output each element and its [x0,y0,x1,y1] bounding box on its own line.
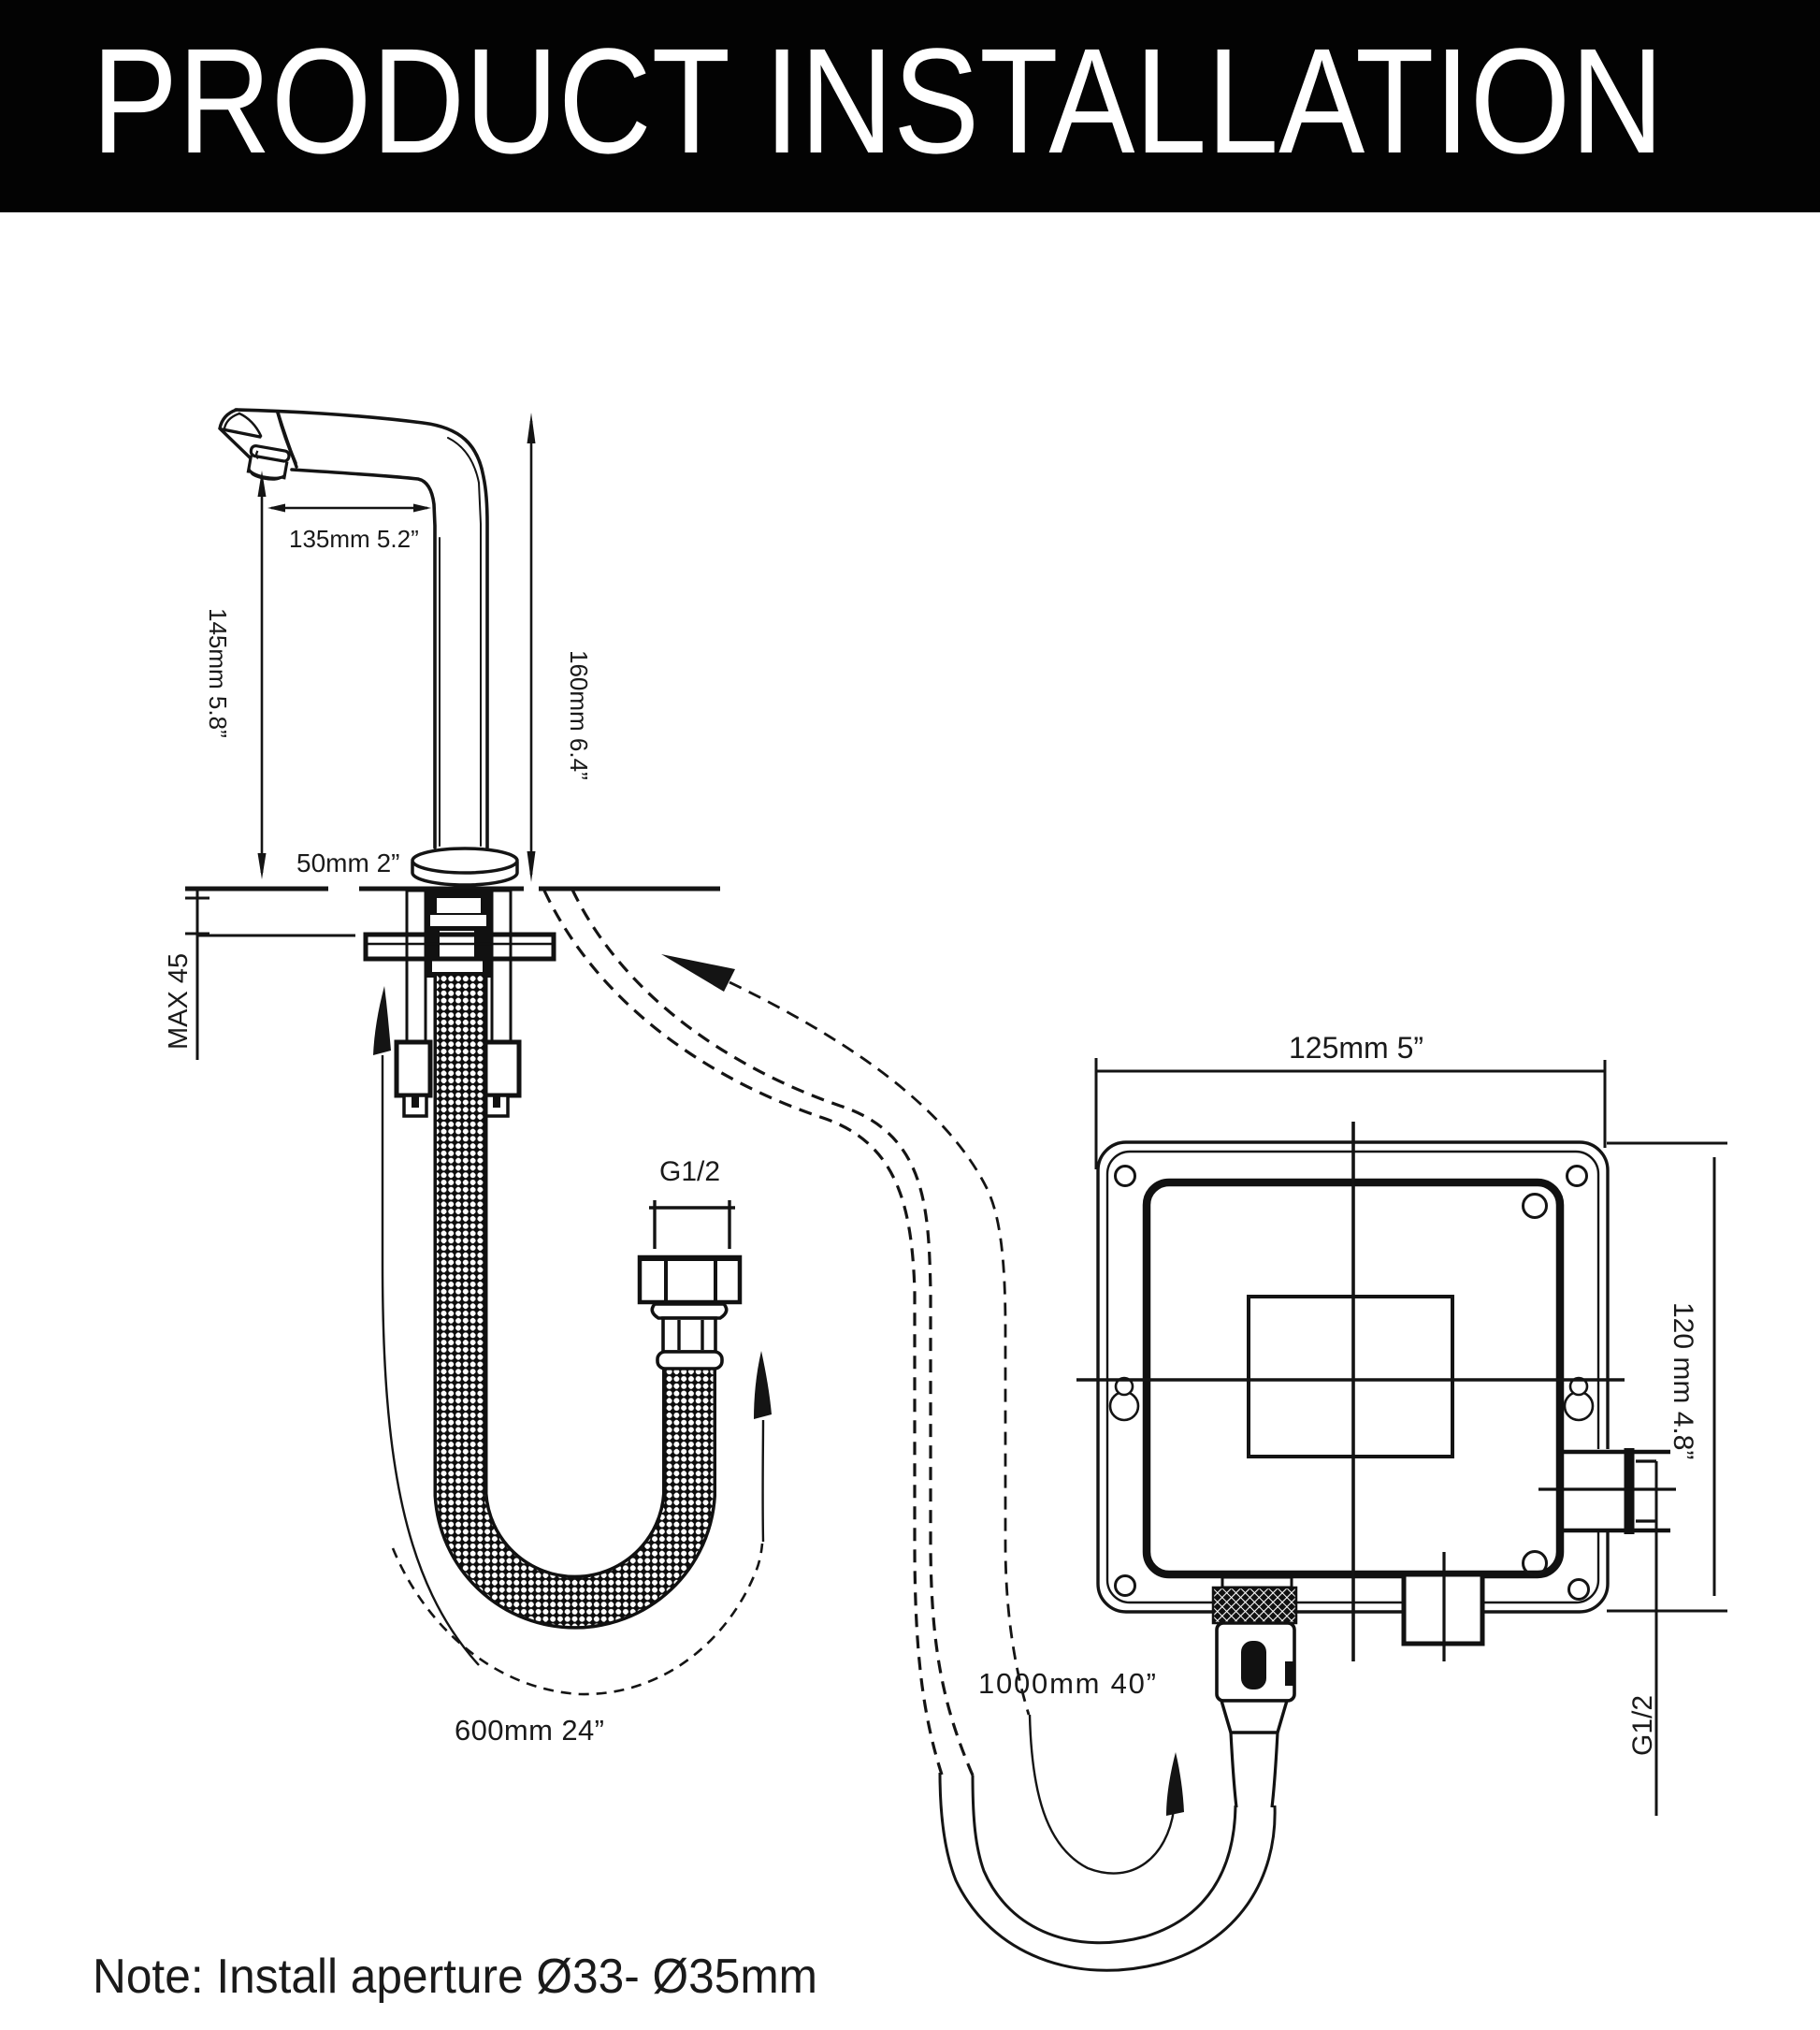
svg-text:1000mm 40”: 1000mm 40” [978,1667,1156,1700]
svg-text:160mm 6.4”: 160mm 6.4” [565,650,593,780]
svg-text:G1/2: G1/2 [659,1156,720,1187]
svg-text:PRODUCT INSTALLATION: PRODUCT INSTALLATION [92,17,1664,184]
svg-text:50mm 2”: 50mm 2” [296,848,399,877]
svg-text:125mm 5”: 125mm 5” [1289,1031,1423,1065]
svg-text:145mm 5.8”: 145mm 5.8” [204,608,232,738]
svg-text:600mm 24”: 600mm 24” [455,1714,604,1747]
svg-text:120 mm 4.8”: 120 mm 4.8” [1668,1302,1698,1459]
svg-text:135mm 5.2”: 135mm 5.2” [289,525,419,553]
svg-text:G1/2: G1/2 [1627,1695,1658,1756]
svg-text:MAX 45: MAX 45 [164,953,194,1050]
svg-text:Note: Install aperture Ø33- Ø3: Note: Install aperture Ø33- Ø35mm [93,1950,817,2004]
